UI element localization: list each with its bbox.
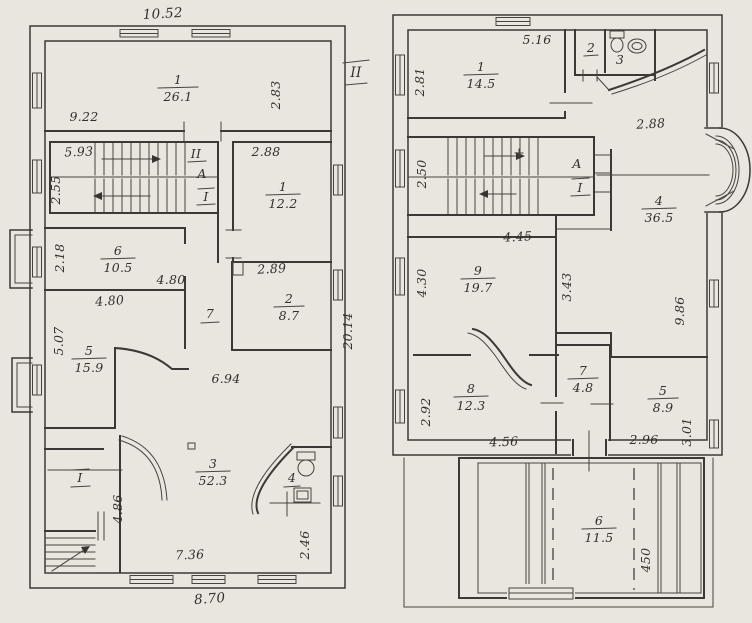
dimension-label: 8.70 bbox=[194, 590, 226, 608]
dimension-label: 7.36 bbox=[175, 547, 205, 563]
axis-marker-label: А bbox=[196, 166, 207, 181]
paper-background bbox=[0, 0, 752, 623]
dimension-label: 10.52 bbox=[142, 5, 183, 23]
room-number-label: 1 bbox=[477, 59, 485, 74]
marker-label: II bbox=[190, 146, 202, 161]
dimension-label: 3.01 bbox=[679, 417, 694, 446]
dimension-label: 4.45 bbox=[502, 228, 533, 245]
dimension-label: 4.86 bbox=[110, 494, 125, 524]
room-number-label: 6 bbox=[114, 243, 122, 258]
dimension-label: 2.89 bbox=[256, 260, 287, 277]
dimension-label: 20.14 bbox=[340, 312, 355, 350]
room-number-label: 5 bbox=[85, 343, 93, 358]
dimension-label: 2.92 bbox=[418, 397, 433, 427]
room-number-label: 5 bbox=[659, 383, 667, 398]
room-area-label: 11.5 bbox=[584, 530, 613, 545]
dimension-label: 9.86 bbox=[672, 296, 687, 325]
dimension-label: 3.43 bbox=[559, 272, 574, 301]
dimension-label: 5.16 bbox=[522, 32, 551, 47]
dimension-label: 2.55 bbox=[48, 175, 63, 205]
room-area-label: 36.5 bbox=[644, 210, 673, 225]
room-area-label: 26.1 bbox=[162, 89, 192, 104]
room-area-label: 52.3 bbox=[198, 473, 227, 488]
room-number-label: 3 bbox=[616, 52, 624, 67]
dimension-label: 2.18 bbox=[52, 243, 67, 273]
room-number-label: 2 bbox=[284, 291, 293, 306]
dimension-label: 2.50 bbox=[414, 159, 429, 189]
dimension-label: 2.83 bbox=[268, 80, 283, 110]
dimension-label: 4.80 bbox=[94, 292, 125, 309]
dimension-label: 9.22 bbox=[69, 109, 98, 124]
room-number-label: 6 bbox=[595, 513, 603, 528]
marker-label: I bbox=[76, 470, 83, 485]
room-number-label: 1 bbox=[279, 179, 287, 194]
room-number-label: 8 bbox=[467, 381, 475, 396]
marker-label: II bbox=[349, 65, 362, 81]
marker-label: I bbox=[202, 189, 209, 204]
dimension-label: 2.96 bbox=[628, 432, 658, 447]
room-area-label: 12.3 bbox=[456, 398, 485, 413]
room-number-label: 7 bbox=[579, 363, 587, 378]
dimension-label: 4.80 bbox=[155, 272, 185, 287]
dimension-label: 2.88 bbox=[635, 115, 666, 132]
room-area-label: 14.5 bbox=[466, 76, 495, 91]
dimension-label: 6.94 bbox=[211, 371, 240, 386]
room-number-label: 4 bbox=[654, 193, 663, 208]
room-area-label: 12.2 bbox=[268, 196, 297, 211]
marker-label: I bbox=[576, 180, 583, 195]
room-number-label: 3 bbox=[209, 456, 217, 471]
dimension-label: 2.81 bbox=[412, 67, 427, 97]
dimension-label: 5.07 bbox=[51, 326, 66, 355]
dimension-label: 2.88 bbox=[250, 144, 280, 159]
room-number-label: 7 bbox=[206, 306, 214, 321]
room-area-label: 10.5 bbox=[103, 260, 132, 275]
room-area-label: 19.7 bbox=[463, 280, 492, 295]
room-number-label: 9 bbox=[474, 263, 482, 278]
axis-marker-label: А bbox=[571, 156, 582, 171]
dimension-label: 4.56 bbox=[488, 434, 519, 450]
dimension-label: 5.93 bbox=[64, 144, 94, 160]
room-number-label: 4 bbox=[287, 470, 296, 485]
room-number-label: 1 bbox=[174, 72, 182, 87]
room-number-label: 2 bbox=[586, 40, 595, 55]
room-area-label: 15.9 bbox=[74, 360, 103, 375]
dimension-label: 4.30 bbox=[414, 268, 429, 298]
dimension-label: 450 bbox=[638, 548, 653, 574]
dimension-label: 2.46 bbox=[297, 530, 312, 560]
floor-plan-scan: 10.52 9.22 2.83 5.93 2.55 2.88 2.18 4.80… bbox=[0, 0, 752, 623]
room-area-label: 8.7 bbox=[279, 308, 300, 323]
room-area-label: 8.9 bbox=[653, 400, 674, 415]
room-area-label: 4.8 bbox=[572, 380, 594, 395]
